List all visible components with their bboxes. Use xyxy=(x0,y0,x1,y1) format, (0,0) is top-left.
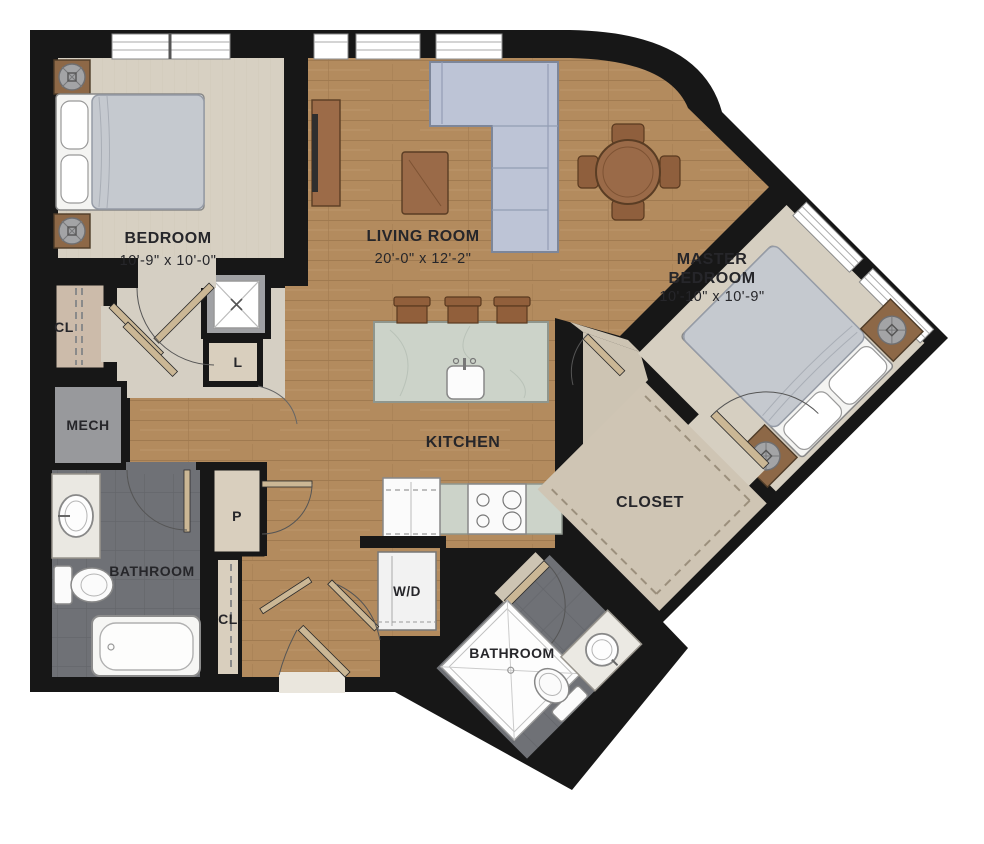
bathtub xyxy=(92,616,200,676)
floor-plan: BEDROOM 10'-9" x 10'-0" LIVING ROOM 20'-… xyxy=(0,0,984,844)
kitchen-label: KITCHEN xyxy=(426,434,501,451)
master-bedroom-label-2: BEDROOM xyxy=(668,270,755,287)
washer-dryer-label: W/D xyxy=(393,584,421,599)
closet-label: CLOSET xyxy=(616,494,684,511)
island-sink xyxy=(447,366,484,399)
floor-plan-page: BEDROOM 10'-9" x 10'-0" LIVING ROOM 20'-… xyxy=(0,0,984,844)
bathroom-right-label: BATHROOM xyxy=(469,645,554,661)
bed xyxy=(56,94,204,210)
bathroom-left-label: BATHROOM xyxy=(109,563,194,579)
entry-threshold xyxy=(279,672,345,693)
living-room-label: LIVING ROOM xyxy=(366,228,479,245)
tv xyxy=(312,114,318,192)
cl-left-label: CL xyxy=(54,319,74,335)
master-bedroom-label-1: MASTER xyxy=(677,251,748,268)
cl-hall-label: CL xyxy=(218,611,238,627)
dining-table xyxy=(596,140,660,204)
bedroom-label: BEDROOM xyxy=(124,230,211,247)
toilet xyxy=(54,566,113,604)
master-bedroom-dims: 10'-10" x 10'-9" xyxy=(659,289,764,305)
bedroom-dims: 10'-9" x 10'-0" xyxy=(120,253,217,269)
linen-label: L xyxy=(233,354,242,370)
stove xyxy=(468,484,526,534)
bar-stools xyxy=(394,297,530,323)
living-room-dims: 20'-0" x 12'-2" xyxy=(375,251,472,267)
mech-label: MECH xyxy=(66,417,109,433)
pantry-label: P xyxy=(232,508,242,524)
